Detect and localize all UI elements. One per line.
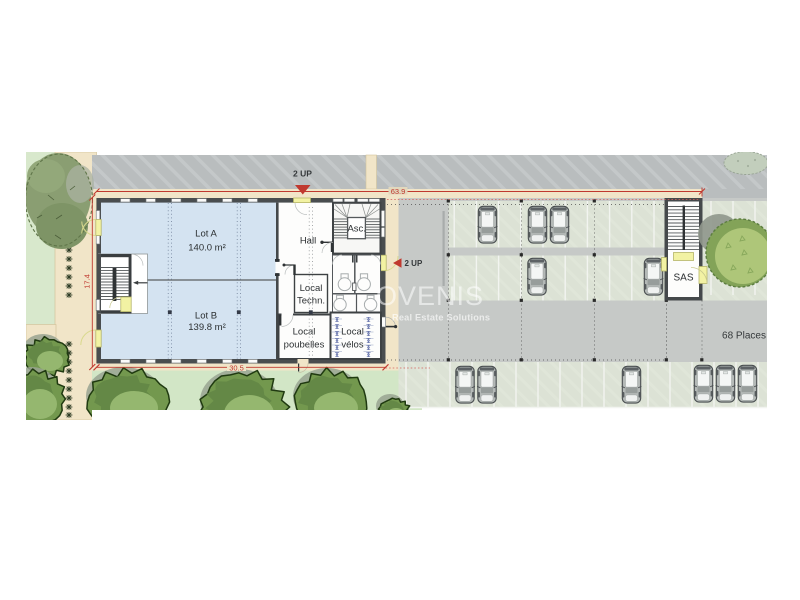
- svg-text:30.5: 30.5: [229, 364, 244, 373]
- svg-text:68 Places: 68 Places: [722, 331, 766, 342]
- svg-text:Local: Local: [300, 283, 323, 294]
- svg-text:OVENIS: OVENIS: [376, 281, 484, 311]
- svg-text:2 UP: 2 UP: [293, 169, 312, 179]
- svg-text:Local: Local: [341, 327, 364, 338]
- svg-text:63.9: 63.9: [391, 187, 406, 196]
- svg-text:vélos: vélos: [341, 340, 363, 351]
- svg-text:Lot B: Lot B: [195, 311, 217, 322]
- svg-text:Real Estate Solutions: Real Estate Solutions: [392, 313, 490, 323]
- svg-text:Hall: Hall: [300, 236, 316, 247]
- svg-text:Lot A: Lot A: [195, 229, 217, 240]
- svg-text:SAS: SAS: [673, 273, 693, 284]
- svg-text:Local: Local: [293, 327, 316, 338]
- svg-text:140.0 m²: 140.0 m²: [188, 243, 226, 254]
- svg-text:poubelles: poubelles: [284, 340, 325, 351]
- svg-text:Asc.: Asc.: [347, 224, 365, 235]
- svg-text:17.4: 17.4: [83, 274, 92, 289]
- svg-text:2 UP: 2 UP: [405, 259, 423, 268]
- svg-text:139.8 m²: 139.8 m²: [188, 322, 226, 333]
- svg-text:Techn.: Techn.: [297, 296, 325, 307]
